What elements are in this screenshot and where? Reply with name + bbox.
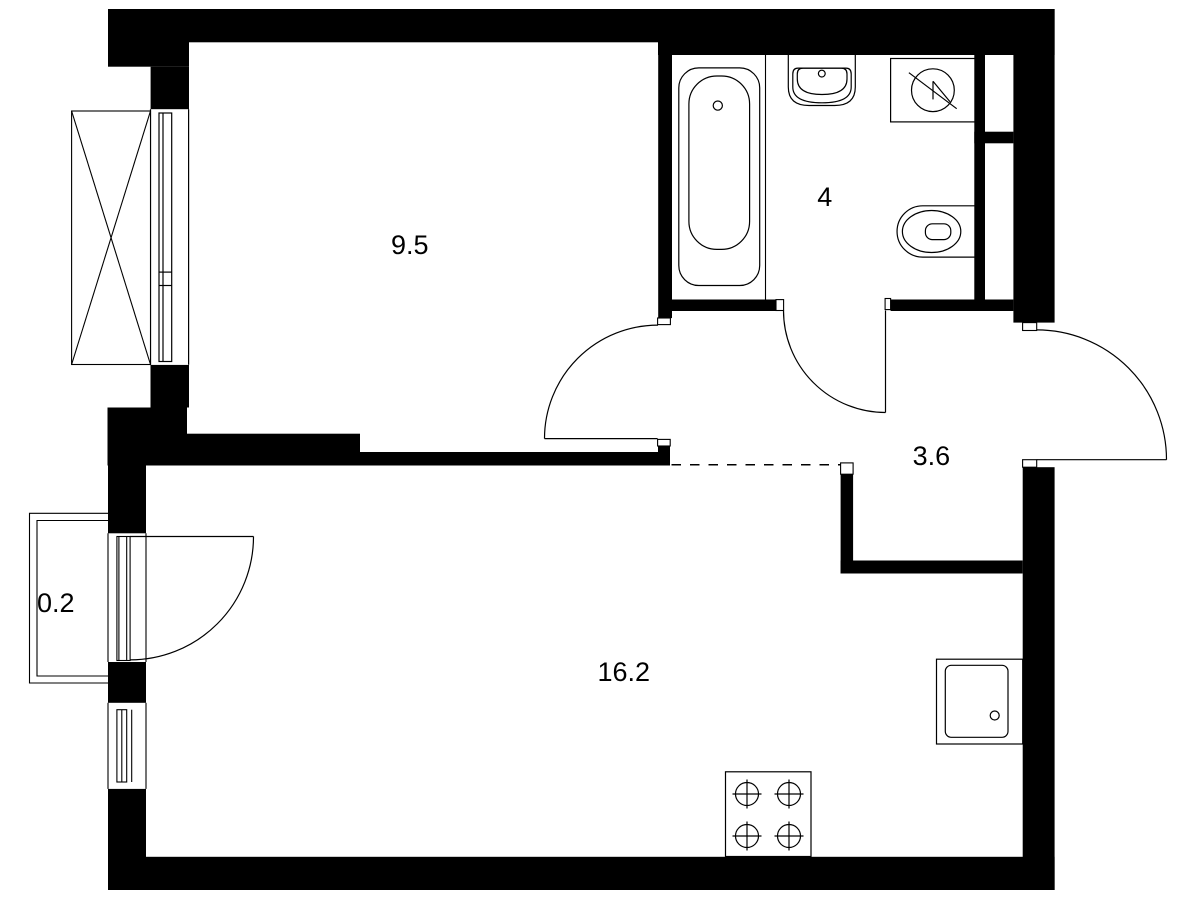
- svg-text:16.2: 16.2: [598, 657, 651, 687]
- svg-text:4: 4: [817, 182, 832, 212]
- svg-text:0.2: 0.2: [37, 588, 75, 618]
- svg-text:3.6: 3.6: [913, 441, 951, 471]
- svg-text:9.5: 9.5: [391, 230, 429, 260]
